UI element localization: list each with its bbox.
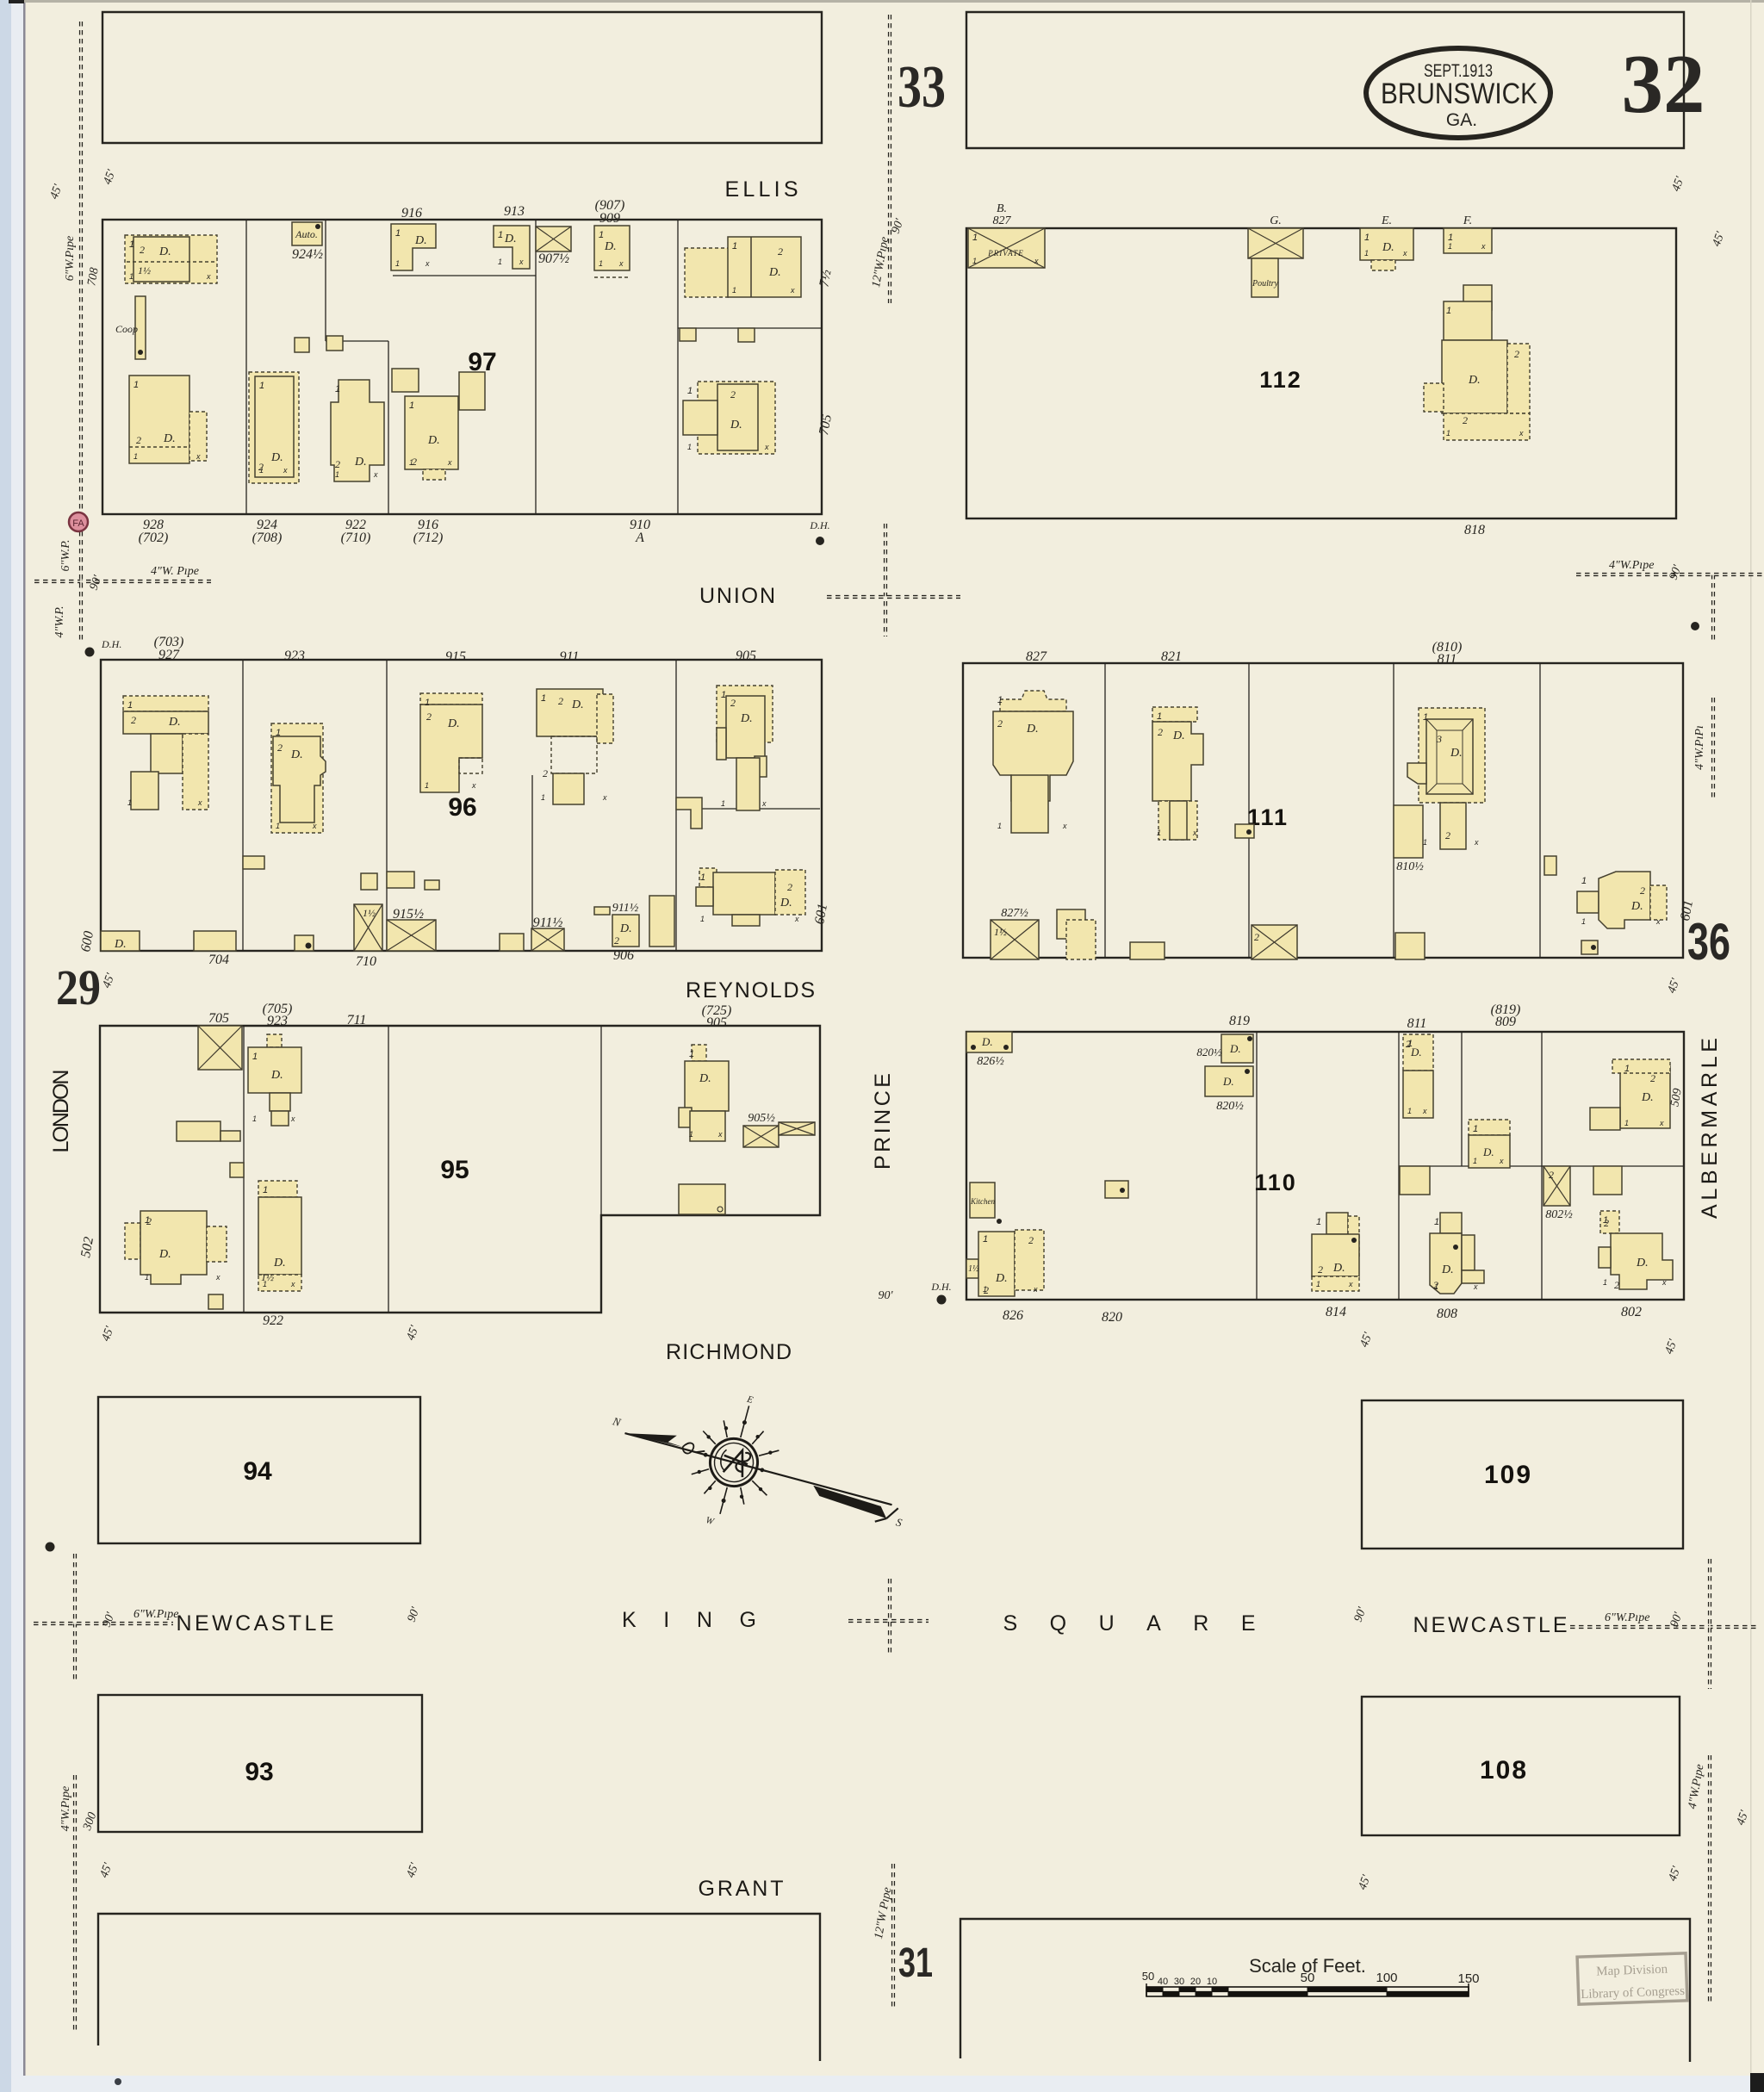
svg-text:909: 909: [599, 211, 620, 226]
svg-text:D.H.: D.H.: [101, 638, 121, 650]
svg-text:x: x: [373, 470, 378, 479]
svg-text:1½: 1½: [138, 264, 151, 276]
svg-text:1: 1: [1624, 1119, 1629, 1127]
svg-text:D.: D.: [163, 432, 176, 445]
svg-text:D.: D.: [768, 266, 781, 279]
svg-text:2: 2: [543, 767, 548, 779]
svg-text:2: 2: [1640, 885, 1645, 897]
svg-text:1: 1: [145, 1273, 149, 1282]
svg-text:1: 1: [983, 1285, 987, 1294]
svg-text:x: x: [1481, 242, 1486, 251]
svg-text:1: 1: [276, 728, 281, 738]
svg-text:924½: 924½: [292, 247, 323, 262]
svg-text:906: 906: [613, 948, 634, 963]
svg-text:D.: D.: [447, 717, 460, 730]
svg-text:1: 1: [259, 381, 264, 391]
svg-text:GRANT: GRANT: [699, 1877, 784, 1901]
svg-text:94: 94: [243, 1457, 272, 1486]
svg-text:ALBERMARLE: ALBERMARLE: [1698, 1038, 1722, 1219]
svg-text:50: 50: [1142, 1970, 1154, 1983]
svg-text:820½: 820½: [1196, 1046, 1222, 1058]
svg-text:1: 1: [997, 695, 1003, 705]
svg-text:3: 3: [1436, 733, 1442, 745]
svg-text:x: x: [1062, 822, 1067, 830]
svg-text:911½: 911½: [612, 902, 639, 915]
svg-text:1: 1: [1434, 1217, 1439, 1227]
svg-text:1: 1: [1364, 233, 1370, 243]
svg-text:2: 2: [277, 742, 283, 754]
svg-text:1: 1: [972, 233, 978, 243]
svg-text:2: 2: [1445, 829, 1450, 841]
svg-text:x: x: [1499, 1157, 1504, 1165]
svg-text:100: 100: [1376, 1971, 1397, 1985]
svg-text:907½: 907½: [538, 251, 569, 266]
svg-text:D.: D.: [571, 698, 584, 711]
svg-text:1: 1: [263, 1280, 267, 1288]
svg-text:4"W.Pıpe: 4"W.Pıpe: [1609, 559, 1654, 572]
svg-text:1: 1: [983, 1234, 988, 1245]
svg-text:710: 710: [356, 954, 376, 969]
svg-text:D.: D.: [114, 938, 127, 951]
svg-text:90': 90': [879, 1289, 894, 1302]
svg-text:x: x: [764, 443, 769, 451]
svg-text:1: 1: [1448, 242, 1452, 251]
svg-text:x: x: [312, 822, 317, 830]
svg-text:D.: D.: [981, 1035, 993, 1048]
svg-text:A: A: [635, 531, 644, 545]
svg-text:923: 923: [267, 1014, 288, 1028]
svg-text:x: x: [447, 458, 452, 467]
svg-text:1: 1: [721, 690, 726, 700]
svg-text:D.: D.: [1482, 1145, 1494, 1158]
svg-text:2: 2: [778, 245, 783, 258]
svg-text:818: 818: [1464, 523, 1485, 537]
svg-text:913: 913: [504, 204, 525, 219]
svg-text:50: 50: [1301, 1971, 1315, 1985]
svg-text:D.: D.: [273, 1257, 286, 1269]
svg-text:F.: F.: [1463, 214, 1472, 227]
svg-text:(710): (710): [341, 531, 371, 545]
svg-text:915: 915: [445, 649, 466, 664]
svg-text:Kitchen: Kitchen: [970, 1197, 995, 1206]
svg-text:1: 1: [599, 230, 604, 240]
svg-text:1: 1: [409, 458, 413, 467]
svg-text:1: 1: [1603, 1278, 1607, 1287]
svg-text:814: 814: [1326, 1305, 1346, 1319]
svg-text:36: 36: [1687, 913, 1730, 971]
svg-text:1: 1: [335, 470, 339, 479]
svg-text:2: 2: [558, 695, 563, 707]
svg-text:1: 1: [700, 915, 705, 923]
svg-text:6"W.Pıpe: 6"W.Pıpe: [134, 1608, 178, 1621]
svg-text:1: 1: [425, 698, 430, 708]
svg-text:1: 1: [599, 259, 603, 268]
svg-text:810½: 810½: [1396, 860, 1424, 873]
svg-text:109: 109: [1484, 1461, 1532, 1489]
svg-text:x: x: [196, 452, 201, 461]
svg-text:4"W.P.: 4"W.P.: [53, 605, 66, 637]
svg-text:32: 32: [1622, 38, 1705, 130]
svg-text:1: 1: [1446, 306, 1451, 316]
svg-text:Poultry: Poultry: [1252, 279, 1279, 289]
svg-text:LONDON: LONDON: [49, 1070, 73, 1153]
svg-text:1: 1: [1364, 249, 1369, 258]
svg-text:ELLIS: ELLIS: [725, 177, 798, 202]
svg-text:x: x: [215, 1273, 220, 1282]
svg-text:2: 2: [997, 717, 1003, 729]
svg-text:905½: 905½: [748, 1112, 775, 1125]
svg-text:D.: D.: [168, 716, 181, 729]
svg-text:x: x: [1348, 1280, 1353, 1288]
svg-text:D.: D.: [427, 434, 440, 447]
svg-text:2: 2: [614, 934, 619, 947]
svg-text:x: x: [618, 259, 624, 268]
svg-text:820: 820: [1102, 1310, 1122, 1325]
svg-text:911½: 911½: [533, 916, 563, 930]
svg-text:1: 1: [1407, 1039, 1413, 1049]
svg-text:40: 40: [1158, 1977, 1168, 1987]
svg-text:UNION: UNION: [699, 584, 775, 608]
svg-text:x: x: [790, 286, 795, 295]
svg-text:1: 1: [1423, 838, 1427, 847]
svg-text:827½: 827½: [1001, 907, 1028, 920]
svg-text:4"W. Pıpe: 4"W. Pıpe: [151, 565, 199, 578]
svg-text:x: x: [283, 466, 288, 475]
svg-text:NEWCASTLE: NEWCASTLE: [1413, 1613, 1568, 1637]
svg-text:2: 2: [131, 714, 136, 726]
svg-text:1: 1: [687, 386, 693, 396]
svg-text:x: x: [1474, 838, 1479, 847]
svg-text:D.: D.: [1641, 1091, 1654, 1104]
svg-text:D.: D.: [604, 240, 617, 253]
svg-text:D.: D.: [780, 897, 792, 909]
svg-text:x: x: [1473, 1282, 1478, 1291]
svg-text:4"W.PıPı: 4"W.PıPı: [1693, 725, 1706, 770]
svg-text:1: 1: [1446, 429, 1450, 438]
svg-text:1: 1: [127, 700, 133, 711]
svg-text:905: 905: [736, 649, 756, 663]
svg-text:1: 1: [689, 1130, 693, 1139]
svg-text:x: x: [1655, 917, 1661, 926]
svg-text:x: x: [197, 798, 202, 807]
svg-text:1: 1: [498, 230, 503, 240]
svg-text:808: 808: [1437, 1307, 1457, 1321]
svg-text:1: 1: [1316, 1280, 1320, 1288]
svg-text:G.: G.: [1270, 214, 1282, 227]
svg-text:1: 1: [129, 272, 134, 281]
svg-text:2: 2: [1158, 726, 1163, 738]
svg-text:1½: 1½: [994, 926, 1007, 938]
svg-text:827: 827: [993, 214, 1012, 227]
svg-text:Coop: Coop: [115, 323, 138, 335]
svg-text:821: 821: [1161, 649, 1182, 664]
svg-text:x: x: [1659, 1119, 1664, 1127]
svg-text:2: 2: [1028, 1234, 1034, 1246]
svg-text:D.: D.: [1026, 723, 1039, 736]
svg-text:RICHMOND: RICHMOND: [666, 1340, 792, 1364]
svg-text:x: x: [290, 1114, 295, 1123]
svg-text:D.: D.: [1441, 1263, 1454, 1276]
svg-text:D.: D.: [270, 1069, 283, 1082]
svg-text:809: 809: [1495, 1015, 1516, 1029]
svg-text:10: 10: [1207, 1977, 1217, 1987]
svg-text:1: 1: [1624, 1064, 1630, 1074]
svg-text:x: x: [1034, 257, 1039, 265]
svg-text:BRUNSWICK: BRUNSWICK: [1381, 78, 1537, 110]
svg-text:2: 2: [136, 434, 141, 446]
svg-text:D.: D.: [740, 712, 753, 725]
svg-text:826: 826: [1003, 1308, 1023, 1323]
svg-text:x: x: [471, 781, 476, 790]
svg-text:x: x: [602, 793, 607, 802]
svg-text:D.: D.: [1332, 1262, 1345, 1275]
svg-text:1: 1: [687, 443, 692, 451]
svg-text:1: 1: [134, 380, 139, 390]
svg-text:1: 1: [1581, 876, 1587, 886]
svg-text:95: 95: [440, 1156, 469, 1184]
svg-text:x: x: [1519, 429, 1524, 438]
svg-text:1: 1: [259, 466, 264, 475]
svg-text:D.: D.: [995, 1272, 1008, 1285]
svg-text:705: 705: [208, 1011, 229, 1026]
svg-text:1: 1: [276, 822, 280, 830]
svg-text:1: 1: [997, 822, 1002, 830]
svg-text:FA: FA: [72, 518, 84, 529]
svg-text:D.: D.: [1468, 374, 1481, 387]
svg-text:1: 1: [541, 693, 546, 704]
svg-text:1: 1: [972, 257, 977, 265]
svg-text:2: 2: [335, 458, 340, 470]
svg-text:704: 704: [208, 953, 229, 967]
svg-text:4"W.Pıpe: 4"W.Pıpe: [59, 1786, 72, 1831]
svg-text:D.: D.: [158, 1248, 171, 1261]
svg-text:x: x: [425, 259, 430, 268]
svg-text:1: 1: [732, 241, 737, 251]
svg-text:2: 2: [1514, 348, 1519, 360]
svg-text:D.H.: D.H.: [930, 1281, 951, 1293]
svg-text:x: x: [206, 272, 211, 281]
svg-text:108: 108: [1480, 1756, 1528, 1785]
svg-text:D.: D.: [414, 234, 427, 247]
svg-text:6"W.Pıpe: 6"W.Pıpe: [1605, 1611, 1649, 1624]
svg-text:1: 1: [395, 259, 400, 268]
svg-text:D.: D.: [1172, 729, 1185, 742]
svg-text:915½: 915½: [393, 907, 424, 922]
svg-text:x: x: [1192, 829, 1197, 837]
svg-text:96: 96: [448, 793, 476, 822]
svg-text:x: x: [1402, 249, 1407, 258]
svg-text:826½: 826½: [977, 1055, 1004, 1068]
svg-text:1: 1: [1473, 1124, 1478, 1134]
svg-text:916: 916: [401, 206, 422, 220]
svg-text:2: 2: [1614, 1279, 1619, 1291]
svg-text:802½: 802½: [1545, 1208, 1573, 1221]
svg-text:112: 112: [1259, 367, 1302, 393]
svg-text:1: 1: [252, 1114, 257, 1123]
svg-text:2: 2: [140, 244, 145, 256]
svg-text:D.: D.: [504, 233, 517, 245]
svg-text:1½: 1½: [968, 1264, 979, 1274]
svg-text:1: 1: [425, 781, 429, 790]
svg-text:2: 2: [730, 388, 736, 400]
svg-text:1: 1: [263, 1185, 268, 1195]
svg-text:1: 1: [134, 452, 138, 461]
svg-text:x: x: [761, 799, 767, 808]
svg-text:802: 802: [1621, 1305, 1642, 1319]
svg-text:6"W.Pıpe: 6"W.Pıpe: [64, 236, 77, 281]
svg-text:2: 2: [1650, 1072, 1655, 1084]
svg-text:1: 1: [145, 1215, 150, 1226]
svg-text:1: 1: [335, 384, 340, 394]
svg-text:D.: D.: [1382, 241, 1394, 254]
svg-text:905: 905: [706, 1015, 727, 1030]
svg-text:x: x: [1662, 1278, 1667, 1287]
svg-text:1: 1: [700, 872, 705, 883]
svg-text:D.: D.: [158, 245, 171, 258]
svg-text:(708): (708): [252, 531, 283, 545]
svg-text:1: 1: [1157, 711, 1162, 722]
svg-text:x: x: [794, 915, 799, 923]
svg-text:927: 927: [158, 648, 180, 662]
svg-text:923: 923: [284, 649, 305, 663]
svg-text:D.: D.: [730, 419, 742, 431]
svg-text:6"W.P.: 6"W.P.: [59, 539, 72, 571]
svg-text:x: x: [519, 258, 524, 266]
svg-text:820½: 820½: [1216, 1100, 1244, 1113]
svg-text:911: 911: [560, 649, 580, 664]
svg-text:x: x: [717, 1130, 723, 1139]
svg-text:1: 1: [732, 286, 736, 295]
svg-text:GA.: GA.: [1446, 110, 1477, 130]
svg-text:2: 2: [1254, 931, 1259, 943]
svg-text:811: 811: [1407, 1016, 1427, 1031]
svg-text:D.: D.: [1222, 1075, 1234, 1088]
svg-text:819: 819: [1229, 1014, 1250, 1028]
svg-text:31: 31: [898, 1940, 933, 1986]
svg-text:Auto.: Auto.: [295, 228, 318, 240]
svg-text:922: 922: [263, 1313, 283, 1328]
svg-text:2: 2: [730, 697, 736, 709]
svg-text:20: 20: [1190, 1977, 1201, 1987]
svg-text:D.: D.: [699, 1072, 711, 1085]
svg-text:1: 1: [395, 228, 401, 239]
svg-text:Map Division: Map Division: [1596, 1963, 1668, 1979]
svg-text:1: 1: [1603, 1215, 1608, 1226]
svg-text:1: 1: [1581, 917, 1586, 926]
svg-text:D.: D.: [1229, 1042, 1241, 1055]
svg-text:PRIVATE: PRIVATE: [987, 249, 1024, 258]
svg-text:1: 1: [1157, 829, 1161, 837]
svg-text:1: 1: [721, 799, 725, 808]
svg-text:1: 1: [409, 400, 414, 411]
svg-text:827: 827: [1026, 649, 1047, 664]
svg-text:D.: D.: [1636, 1257, 1649, 1269]
svg-text:29: 29: [56, 959, 101, 1015]
svg-text:D.: D.: [354, 456, 367, 469]
svg-text:711: 711: [347, 1013, 367, 1027]
svg-text:1: 1: [498, 258, 502, 266]
svg-text:2: 2: [1463, 414, 1468, 426]
svg-text:x: x: [1422, 1107, 1427, 1115]
svg-text:2: 2: [1318, 1263, 1323, 1276]
svg-text:D.: D.: [290, 748, 303, 761]
svg-text:x: x: [290, 1280, 295, 1288]
svg-text:1: 1: [252, 1052, 258, 1062]
svg-text:2: 2: [426, 711, 432, 723]
svg-text:33: 33: [898, 54, 946, 121]
svg-text:1: 1: [1407, 1107, 1412, 1115]
svg-text:1: 1: [1316, 1217, 1321, 1227]
svg-text:1: 1: [127, 798, 132, 807]
svg-text:1: 1: [1434, 1282, 1438, 1291]
svg-text:93: 93: [245, 1758, 273, 1786]
svg-text:1: 1: [1423, 712, 1428, 723]
svg-text:7½: 7½: [817, 269, 834, 289]
svg-text:D.: D.: [619, 922, 632, 935]
svg-text:x: x: [1033, 1285, 1038, 1294]
svg-text:NEWCASTLE: NEWCASTLE: [177, 1611, 334, 1636]
svg-text:B.: B.: [997, 202, 1007, 215]
svg-text:2: 2: [787, 881, 792, 893]
svg-text:811: 811: [1438, 652, 1457, 667]
svg-text:(702): (702): [139, 531, 169, 545]
svg-text:D.: D.: [270, 451, 283, 464]
svg-text:D.: D.: [1630, 900, 1643, 913]
svg-text:1: 1: [1473, 1157, 1477, 1165]
svg-text:2: 2: [1549, 1169, 1554, 1181]
svg-text:D.: D.: [1450, 747, 1463, 760]
svg-text:1½: 1½: [363, 907, 376, 919]
svg-text:110: 110: [1254, 1170, 1297, 1195]
svg-text:30: 30: [1174, 1977, 1184, 1987]
svg-text:1: 1: [541, 793, 545, 802]
svg-text:1: 1: [689, 1049, 694, 1059]
svg-text:(712): (712): [413, 531, 444, 545]
svg-text:E.: E.: [1381, 214, 1392, 227]
svg-text:D.H.: D.H.: [809, 519, 829, 531]
svg-text:1: 1: [129, 239, 134, 250]
